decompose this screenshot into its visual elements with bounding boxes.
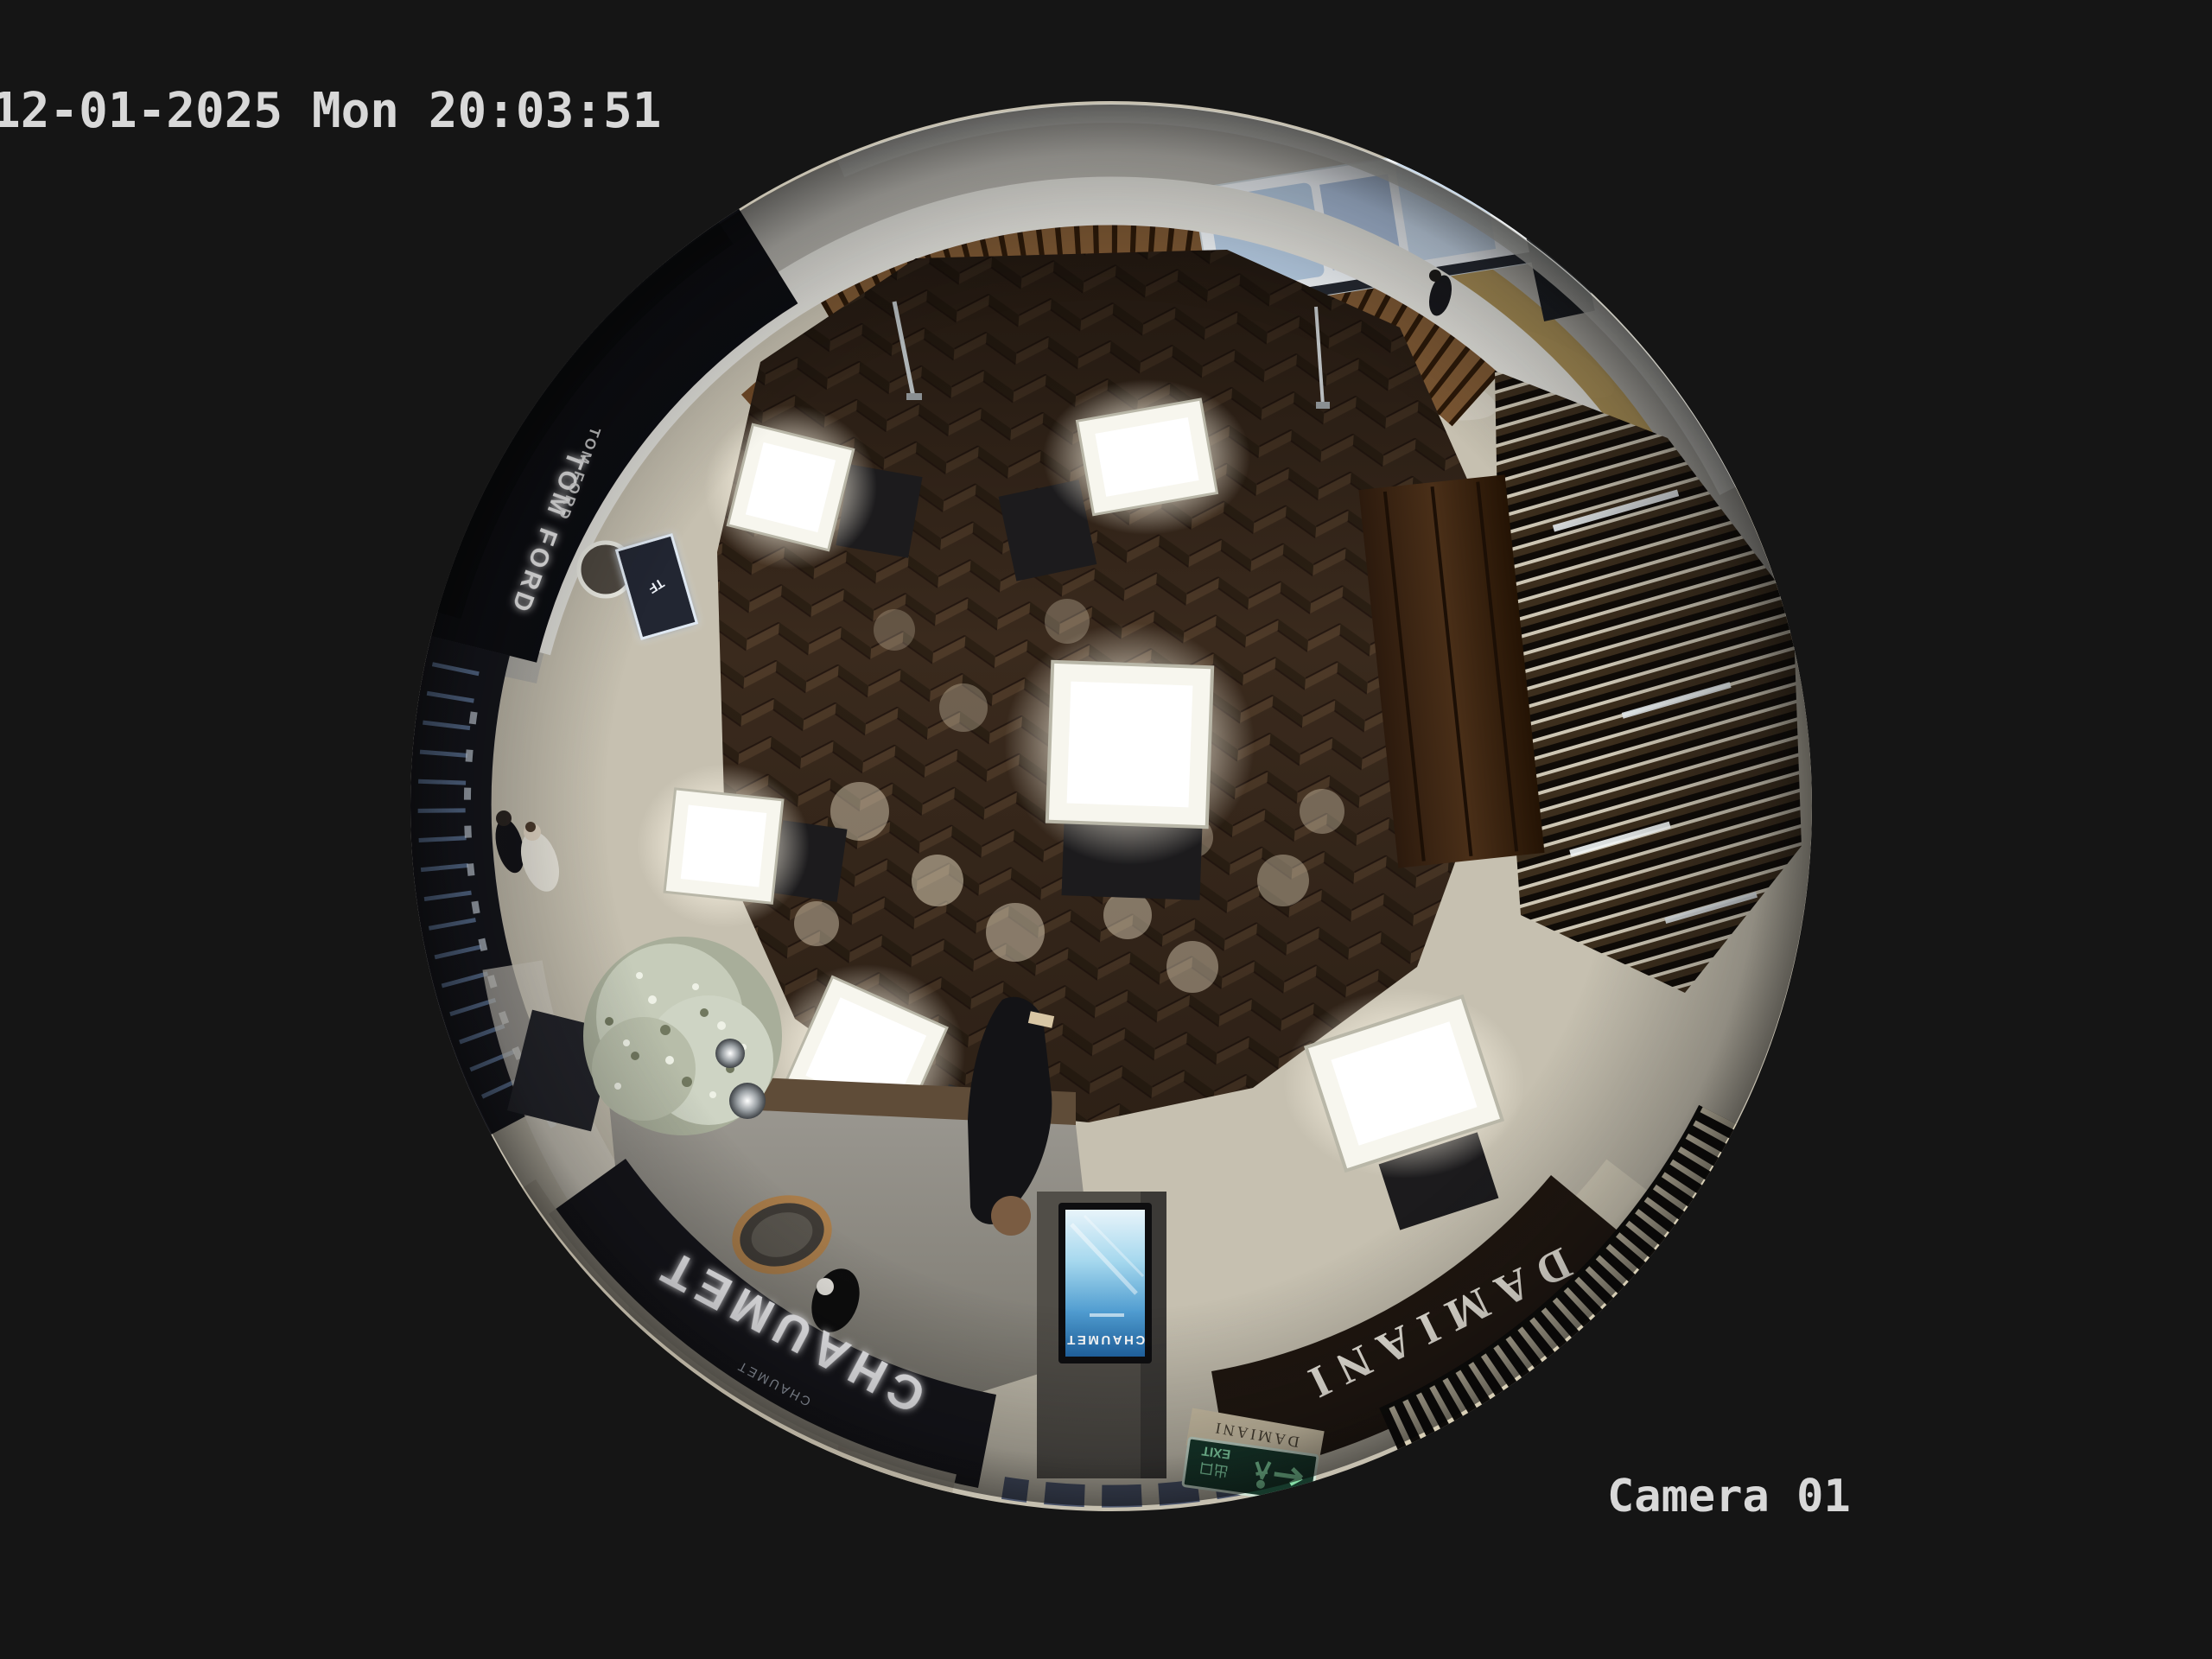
camera-label: Camera 01 [1607,1471,1851,1522]
fisheye-camera-view: TOM FORD TOM FORD TF [410,101,1812,1511]
cctv-frame: 12-01-2025 Mon 20:03:51 [0,0,2212,1659]
fisheye-scene: TOM FORD TOM FORD TF [410,101,1812,1511]
fisheye-vignette [410,105,1812,1506]
osd-timestamp: 12-01-2025 Mon 20:03:51 [0,83,661,139]
